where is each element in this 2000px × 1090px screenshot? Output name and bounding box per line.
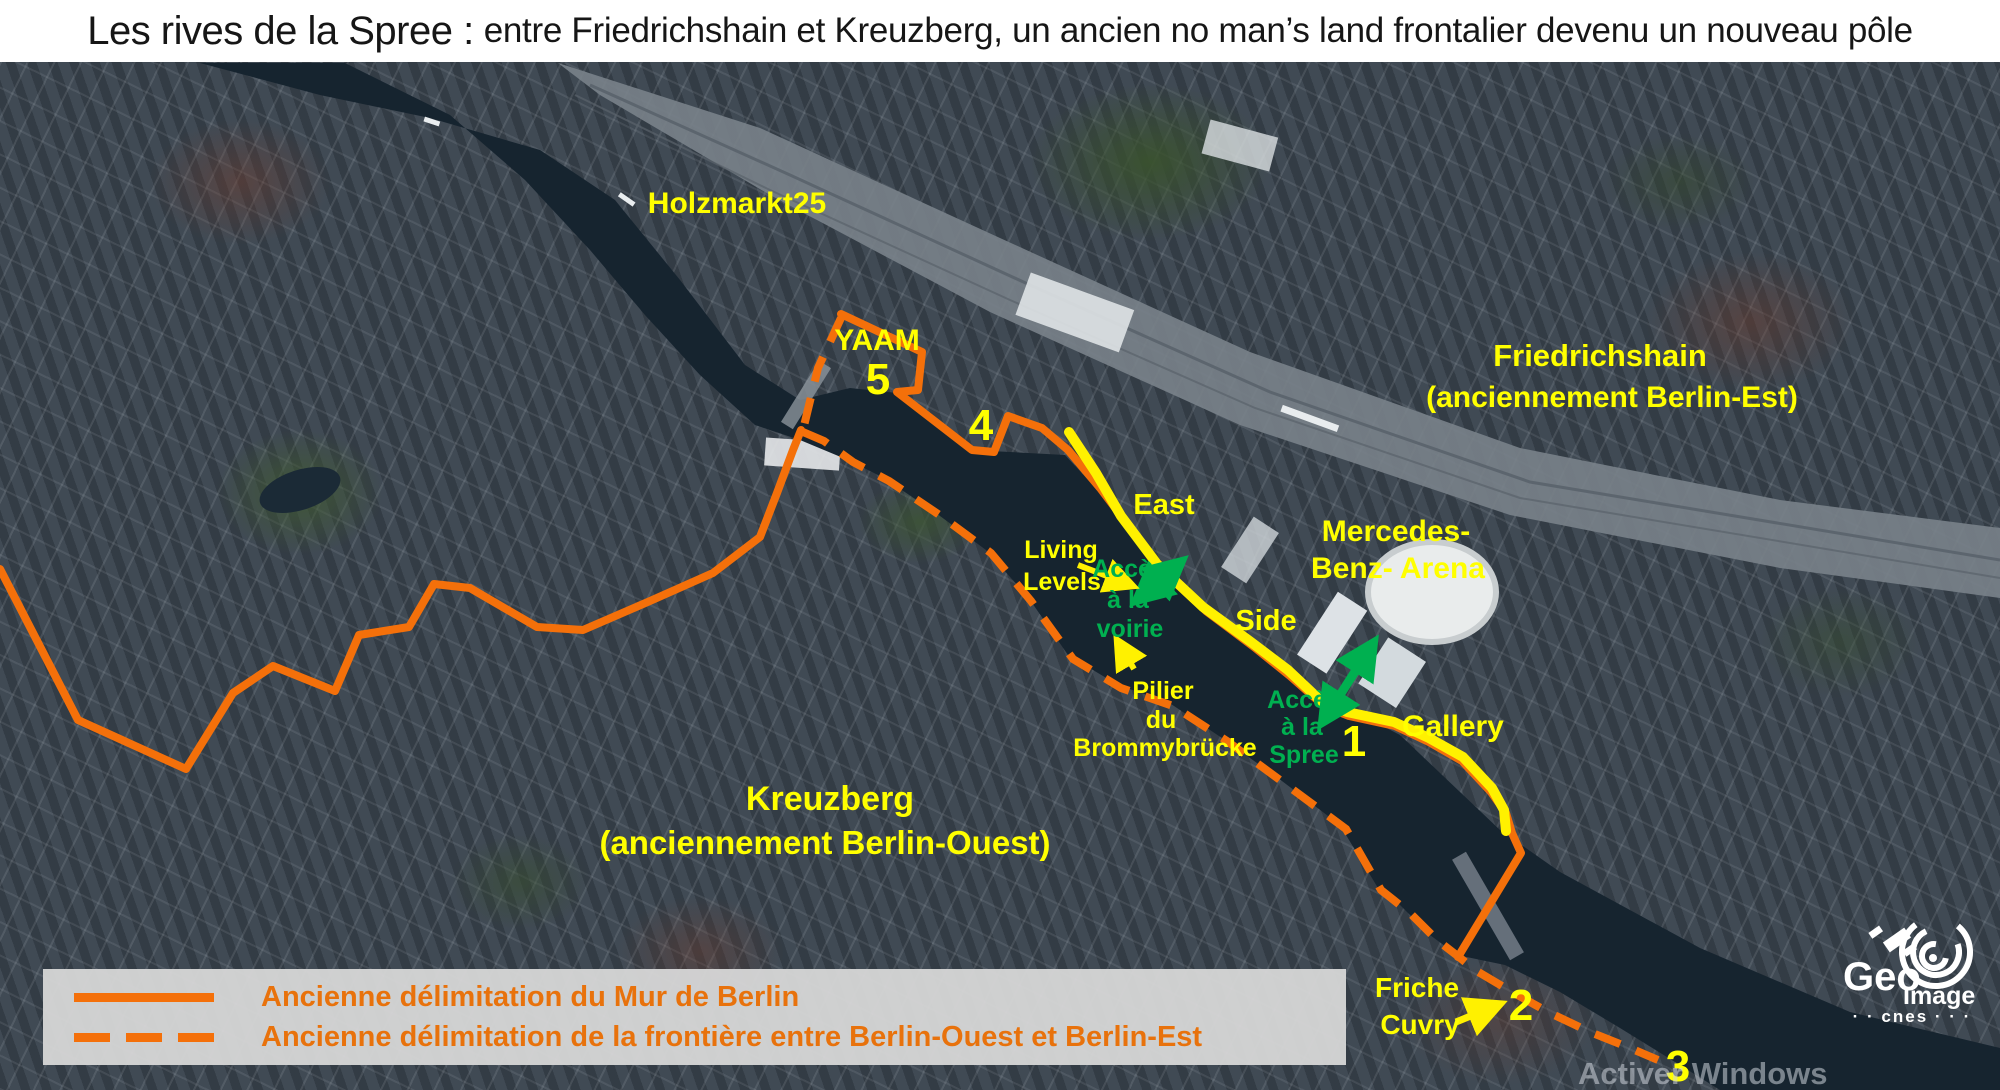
label-acces-voirie: à la — [1107, 586, 1150, 614]
friche-cuvry-arrow — [1456, 1004, 1500, 1022]
label-kreuzberg: (anciennement Berlin-Ouest) — [599, 824, 1050, 861]
legend-wall-label: Ancienne délimitation du Mur de Berlin — [261, 981, 799, 1014]
windows-watermark: Activer Windows — [1578, 1056, 1827, 1090]
label-mercedes-benz-arena: Benz- Arena — [1311, 552, 1485, 585]
legend-dashed-line-swatch — [74, 1033, 214, 1042]
label-pilier-brommybruecke: du — [1146, 706, 1177, 734]
label-friche-cuvry: Cuvry — [1380, 1009, 1460, 1040]
label-holzmarkt25: Holzmarkt25 — [648, 187, 826, 220]
title-rest: entre Friedrichshain et Kreuzberg, un an… — [484, 11, 1913, 51]
satellite-map: Holzmarkt25 YAAM 5 4 East Living Levels … — [0, 62, 2000, 1090]
label-acces-spree: Spree — [1269, 741, 1339, 769]
label-kreuzberg: Kreuzberg — [746, 780, 914, 818]
boat — [618, 192, 636, 206]
logo-image: Image — [1903, 982, 1975, 1010]
tower-building — [1221, 517, 1279, 584]
label-friedrichshain: Friedrichshain — [1493, 338, 1707, 373]
label-acces-voirie: Accès — [1092, 555, 1166, 583]
marker-5: 5 — [866, 355, 890, 404]
legend-row-border: Ancienne délimitation de la frontière en… — [43, 1017, 1346, 1057]
label-living-levels: Living — [1024, 536, 1098, 564]
legend-solid-line-swatch — [74, 993, 214, 1002]
label-living-levels: Levels — [1023, 568, 1101, 596]
label-acces-voirie: voirie — [1097, 615, 1164, 643]
marker-4: 4 — [969, 401, 994, 450]
label-pilier-brommybruecke: Pilier — [1132, 677, 1193, 705]
slide-title: Les rives de la Spree : entre Friedrichs… — [0, 0, 2000, 62]
park-pond — [254, 458, 346, 522]
label-yaam: YAAM — [834, 324, 920, 357]
label-friedrichshain: (anciennement Berlin-Est) — [1426, 381, 1798, 414]
label-side: Side — [1235, 605, 1296, 637]
wall-line-west — [0, 430, 801, 769]
legend-row-wall: Ancienne délimitation du Mur de Berlin — [43, 977, 1346, 1017]
railway-band — [558, 63, 2000, 598]
label-gallery: Gallery — [1402, 710, 1504, 743]
legend-border-label: Ancienne délimitation de la frontière en… — [261, 1021, 1202, 1054]
map-legend: Ancienne délimitation du Mur de Berlin A… — [43, 969, 1346, 1065]
marker-2: 2 — [1509, 981, 1533, 1030]
logo-cnes: · · cnes · · · — [1853, 1007, 1972, 1026]
title-lead: Les rives de la Spree : — [87, 9, 474, 54]
label-east: East — [1133, 489, 1195, 521]
map-overlay: Holzmarkt25 YAAM 5 4 East Living Levels … — [0, 62, 2000, 1090]
label-friche-cuvry: Friche — [1375, 972, 1459, 1003]
label-acces-spree: Accès — [1267, 686, 1341, 714]
warehouse — [1202, 120, 1279, 172]
label-mercedes-benz-arena: Mercedes- — [1322, 515, 1470, 548]
geoimage-cnes-logo: Geo Image · · cnes · · · — [1843, 904, 1984, 1026]
marker-1: 1 — [1342, 717, 1366, 766]
label-acces-spree: à la — [1281, 713, 1324, 741]
label-pilier-brommybruecke: Brommybrücke — [1073, 734, 1256, 762]
